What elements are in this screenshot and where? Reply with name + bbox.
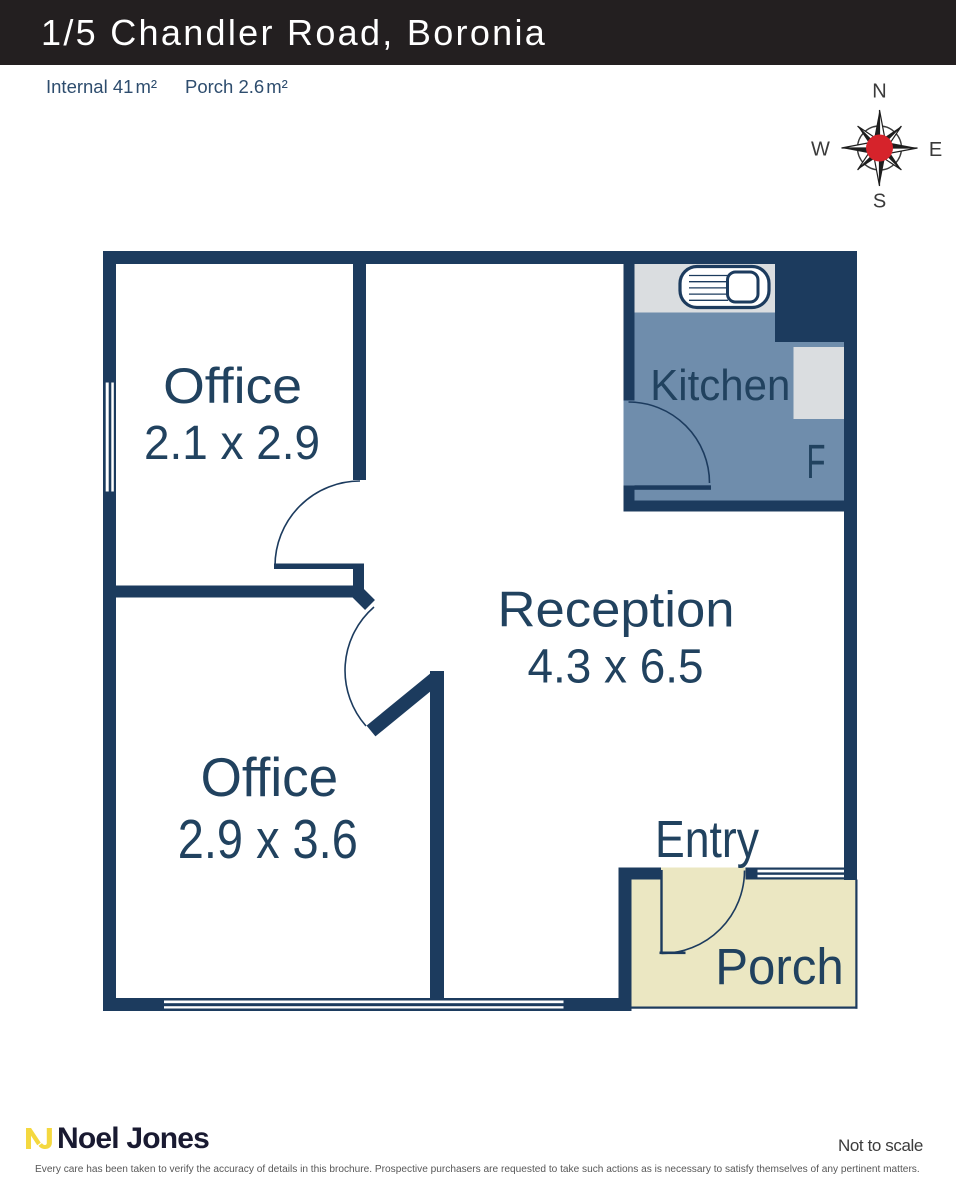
svg-text:2.9 x 3.6: 2.9 x 3.6 [178,808,358,870]
svg-text:Entry: Entry [655,811,759,869]
svg-text:Office: Office [201,746,339,808]
svg-text:Office: Office [163,358,302,414]
svg-text:Kitchen: Kitchen [650,362,790,410]
svg-text:Reception: Reception [498,582,735,638]
svg-text:4.3 x 6.5: 4.3 x 6.5 [528,641,704,694]
svg-text:F: F [807,436,826,489]
svg-text:2.1 x 2.9: 2.1 x 2.9 [144,417,320,470]
svg-text:Porch: Porch [715,938,844,995]
